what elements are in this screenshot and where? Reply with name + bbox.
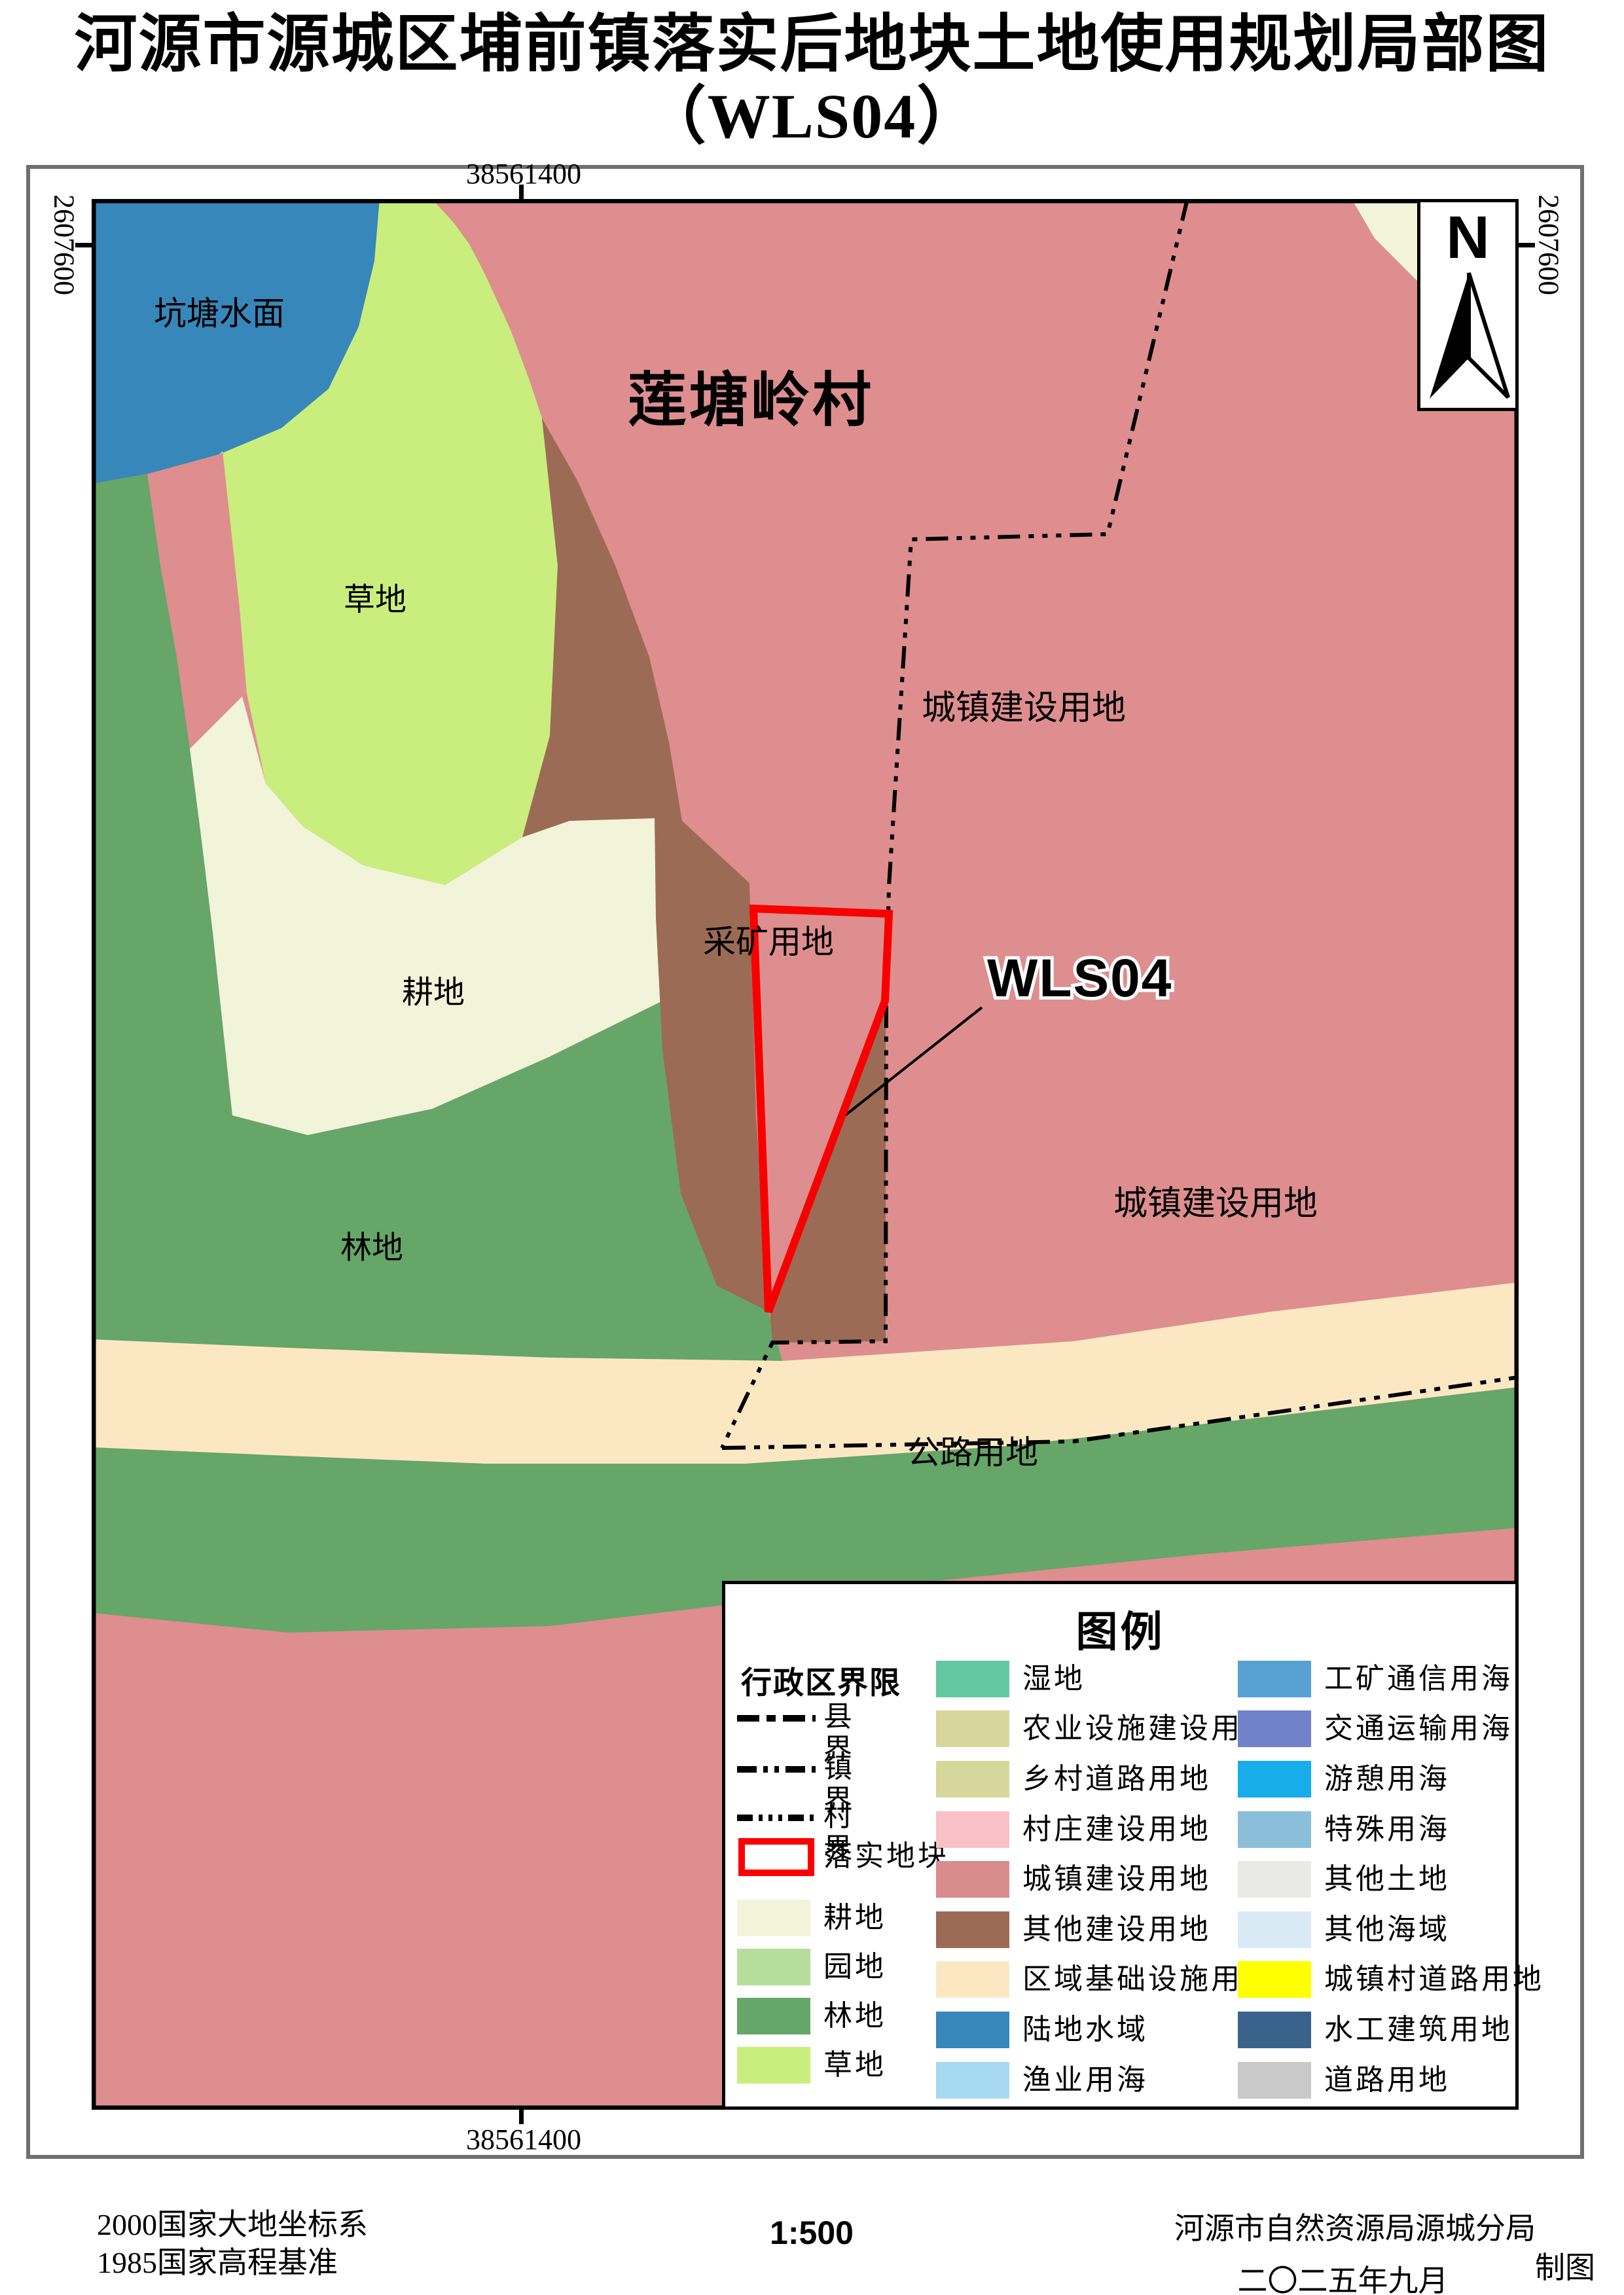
legend-item-label: 落实地块 bbox=[823, 1838, 949, 1875]
legend-swatch bbox=[737, 1998, 810, 2034]
legend-item-label: 交通运输用海 bbox=[1324, 1710, 1513, 1747]
map-label-farmland: 耕地 bbox=[402, 975, 465, 1010]
map-label-town-upper: 城镇建设用地 bbox=[922, 690, 1126, 727]
legend: 图例 行政区界限 县界 镇界 村界 bbox=[722, 1581, 1519, 2110]
page-title: 河源市源城区埔前镇落实后地块土地使用规划局部图 bbox=[0, 9, 1624, 80]
legend-item-label: 镇界 bbox=[823, 1752, 859, 1784]
legend-swatch bbox=[737, 2047, 810, 2084]
legend-item-label: 其他海域 bbox=[1324, 1911, 1450, 1948]
legend-item-label: 其他建设用地 bbox=[1022, 1911, 1211, 1948]
map-label-mining: 采矿用地 bbox=[703, 924, 834, 960]
legend-item-label: 陆地水域 bbox=[1022, 2012, 1148, 2048]
legend-swatch bbox=[936, 1710, 1009, 1747]
legend-swatch bbox=[1238, 1661, 1311, 1697]
legend-item-label: 湿地 bbox=[1022, 1661, 1085, 1697]
north-label: N bbox=[1420, 204, 1515, 272]
north-arrow-icon bbox=[1420, 268, 1515, 408]
map-label-plot-code: WLS04 bbox=[987, 949, 1172, 1008]
map-label-town-lower: 城镇建设用地 bbox=[1113, 1185, 1318, 1223]
legend-item-label: 道路用地 bbox=[1324, 2062, 1450, 2099]
legend-swatch bbox=[936, 1861, 1009, 1898]
legend-item-label: 园地 bbox=[823, 1949, 886, 1985]
legend-swatch bbox=[936, 1811, 1009, 1848]
legend-item-label: 特殊用海 bbox=[1324, 1811, 1450, 1848]
grid-tick-bottom bbox=[519, 2108, 524, 2124]
village-boundary-line-icon bbox=[737, 1815, 816, 1821]
map-date: 二〇二五年九月 bbox=[1174, 2257, 1511, 2295]
plot-outline-icon bbox=[738, 1838, 814, 1876]
map-sheet: 河源市源城区埔前镇落实后地块土地使用规划局部图 （WLS04） 坑 bbox=[0, 0, 1624, 2295]
legend-swatch bbox=[936, 1761, 1009, 1798]
legend-item-label: 耕地 bbox=[823, 1900, 886, 1936]
north-arrow-left-half bbox=[1430, 273, 1469, 399]
legend-swatch bbox=[737, 1900, 810, 1936]
legend-item-label: 村庄建设用地 bbox=[1022, 1811, 1211, 1848]
legend-col-right: 工矿通信用海 交通运输用海 游憩用海 特殊用海 其他土地 其他海域 bbox=[1238, 1584, 1519, 2106]
legend-item-label: 农业设施建设用地 bbox=[1022, 1710, 1274, 1747]
legend-swatch bbox=[936, 1661, 1009, 1697]
legend-item-label: 城镇建设用地 bbox=[1022, 1861, 1211, 1898]
legend-item-label: 乡村道路用地 bbox=[1022, 1761, 1211, 1798]
legend-item-label: 区域基础设施用地 bbox=[1022, 1961, 1274, 1998]
map-scale: 1:500 bbox=[713, 2214, 910, 2252]
legend-swatch bbox=[936, 2062, 1009, 2099]
grid-tick-left bbox=[75, 243, 92, 247]
legend-item-label: 草地 bbox=[823, 2047, 886, 2084]
legend-swatch bbox=[1238, 2012, 1311, 2048]
grid-label-bottom: 38561400 bbox=[419, 2123, 628, 2156]
map-label-highway: 公路用地 bbox=[907, 1434, 1038, 1471]
legend-item-label: 林地 bbox=[823, 1998, 886, 2034]
north-arrow-right-half bbox=[1469, 273, 1508, 397]
legend-item-label: 渔业用海 bbox=[1022, 2062, 1148, 2099]
legend-swatch bbox=[1238, 2062, 1311, 2099]
datum-line-1: 2000国家大地坐标系 bbox=[97, 2201, 368, 2244]
map-label-forest: 林地 bbox=[340, 1231, 403, 1265]
grid-label-right: 2607600 bbox=[1532, 194, 1566, 295]
legend-item-label: 水工建筑用地 bbox=[1324, 2012, 1513, 2048]
datum-line-2: 1985国家高程基准 bbox=[97, 2239, 338, 2282]
map-label-pond: 坑塘水面 bbox=[154, 295, 285, 332]
credit-label: 制图 bbox=[1535, 2244, 1595, 2287]
legend-item-label: 城镇村道路用地 bbox=[1324, 1961, 1544, 1998]
legend-swatch bbox=[936, 1961, 1009, 1998]
town-boundary-line-icon bbox=[737, 1766, 816, 1773]
legend-swatch bbox=[1238, 1811, 1311, 1848]
legend-swatch bbox=[1238, 1710, 1311, 1747]
legend-item-label: 县界 bbox=[823, 1701, 859, 1733]
grid-tick-right bbox=[1519, 243, 1535, 247]
grid-tick-top bbox=[519, 185, 524, 200]
north-arrow-box: N bbox=[1417, 199, 1519, 411]
legend-swatch bbox=[1238, 1961, 1311, 1998]
legend-item-label: 其他土地 bbox=[1324, 1861, 1450, 1898]
legend-item-label: 村界 bbox=[823, 1800, 859, 1833]
map-label-village: 莲塘岭村 bbox=[628, 369, 874, 433]
legend-swatch bbox=[737, 1949, 810, 1985]
legend-swatch bbox=[1238, 1861, 1311, 1898]
legend-swatch bbox=[1238, 1761, 1311, 1798]
grid-label-top: 38561400 bbox=[419, 157, 628, 190]
legend-swatch bbox=[1238, 1911, 1311, 1948]
legend-col-admin: 行政区界限 县界 镇界 村界 落实地块 bbox=[737, 1584, 933, 2106]
legend-col-middle: 湿地 农业设施建设用地 乡村道路用地 村庄建设用地 城镇建设用地 其他建设用地 bbox=[936, 1584, 1234, 2106]
legend-admin-header: 行政区界限 bbox=[741, 1657, 901, 1703]
legend-swatch bbox=[936, 1911, 1009, 1948]
map-label-grass: 草地 bbox=[344, 583, 406, 617]
legend-swatch bbox=[936, 2012, 1009, 2048]
county-boundary-line-icon bbox=[737, 1715, 816, 1722]
legend-item-label: 工矿通信用海 bbox=[1324, 1661, 1513, 1697]
legend-item-label: 游憩用海 bbox=[1324, 1761, 1450, 1798]
agency-name: 河源市自然资源局源城分局 bbox=[1174, 2205, 1511, 2248]
page-subtitle: （WLS04） bbox=[0, 81, 1624, 152]
